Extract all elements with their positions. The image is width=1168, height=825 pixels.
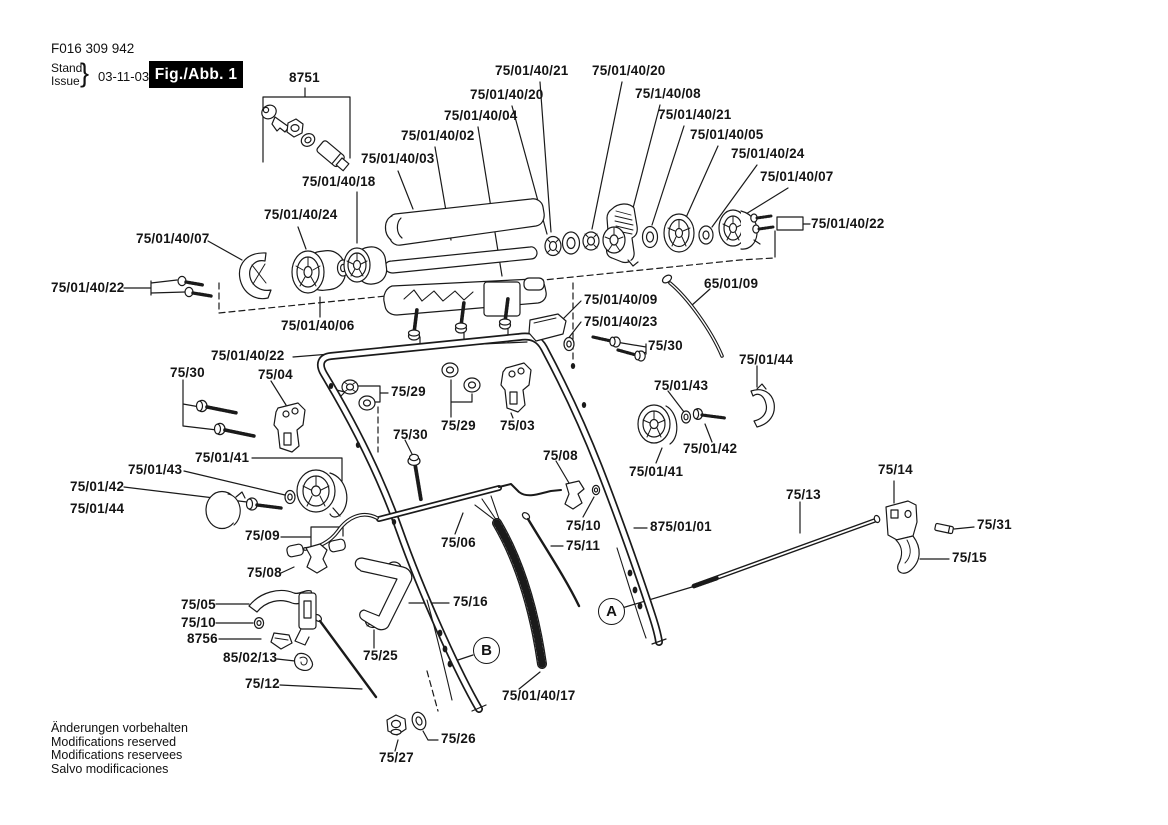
part-label: 75/01/44 — [739, 353, 793, 367]
part-label: 75/30 — [393, 428, 428, 442]
part-label: 75/10 — [566, 519, 601, 533]
section-marker-b: B — [473, 637, 500, 664]
legal-note-de: Änderungen vorbehalten — [51, 722, 188, 736]
part-label: 75/01/40/05 — [690, 128, 764, 142]
right-handwheel-group — [638, 384, 774, 444]
part-label: 75/14 — [878, 463, 913, 477]
part-label: 75/27 — [379, 751, 414, 765]
part-label: 75/26 — [441, 732, 476, 746]
part-label: 75/08 — [543, 449, 578, 463]
left-handwheel-group — [206, 470, 347, 529]
part-label: 75/01/40/18 — [302, 175, 376, 189]
legal-notes: Änderungen vorbehalten Modifications res… — [51, 722, 188, 776]
part-label: 75/01/40/02 — [401, 129, 475, 143]
part-label: 75/30 — [648, 339, 683, 353]
part-label: 75/01/40/20 — [470, 88, 544, 102]
part-label: 8756 — [187, 632, 218, 646]
part-label: 75/10 — [181, 616, 216, 630]
part-label: 875/01/01 — [650, 520, 712, 534]
switch-housing-assembly — [376, 199, 574, 351]
part-label: 75/01/40/24 — [731, 147, 805, 161]
part-label: 75/01/40/04 — [444, 109, 518, 123]
part-label: 75/01/44 — [70, 502, 124, 516]
part-label: 75/01/40/09 — [584, 293, 658, 307]
part-label: 75/01/41 — [629, 465, 683, 479]
part-label: 75/1/40/08 — [635, 87, 701, 101]
part-label: 75/15 — [952, 551, 987, 565]
part-label: 75/01/40/22 — [51, 281, 125, 295]
part-label: 75/01/40/07 — [136, 232, 210, 246]
part-label: 75/01/40/20 — [592, 64, 666, 78]
part-label: 75/06 — [441, 536, 476, 550]
part-label: 75/01/40/07 — [760, 170, 834, 184]
part-label: 75/01/40/03 — [361, 152, 435, 166]
height-adjust-parts-row — [545, 204, 773, 266]
legal-note-es: Salvo modificaciones — [51, 763, 188, 777]
part-label: 75/01/42 — [683, 442, 737, 456]
part-label: 75/29 — [441, 419, 476, 433]
part-label: 85/02/13 — [223, 651, 277, 665]
support-bracket — [355, 558, 411, 630]
part-label: 75/01/40/17 — [502, 689, 576, 703]
part-label: 75/31 — [977, 518, 1012, 532]
part-label: 75/05 — [181, 598, 216, 612]
trigger-group — [886, 501, 954, 573]
part-label: 75/30 — [170, 366, 205, 380]
part-label: 8751 — [289, 71, 320, 85]
part-label: 65/01/09 — [704, 277, 758, 291]
part-label: 75/01/40/22 — [211, 349, 285, 363]
part-label: 75/01/43 — [654, 379, 708, 393]
part-label: 75/01/40/06 — [281, 319, 355, 333]
part-label: 75/29 — [391, 385, 426, 399]
exploded-parts-drawing — [0, 0, 1168, 825]
part-label: 75/16 — [453, 595, 488, 609]
left-roller-assembly — [178, 245, 388, 298]
part-label: 75/04 — [258, 368, 293, 382]
part-label: 75/01/40/21 — [658, 108, 732, 122]
part-label: 75/01/42 — [70, 480, 124, 494]
part-label: 75/01/40/24 — [264, 208, 338, 222]
legal-note-fr: Modifications reservees — [51, 749, 188, 763]
part-label: 75/01/40/22 — [811, 217, 885, 231]
part-label: 75/11 — [566, 539, 600, 553]
part-label: 75/08 — [247, 566, 282, 580]
part-label: 75/01/40/23 — [584, 315, 658, 329]
bottom-fasteners — [387, 710, 428, 735]
part-label: 75/01/43 — [128, 463, 182, 477]
part-label: 75/12 — [245, 677, 280, 691]
part-label: 75/25 — [363, 649, 398, 663]
part-label: 75/09 — [245, 529, 280, 543]
key-lock-assembly — [259, 102, 351, 172]
part-label: 75/03 — [500, 419, 535, 433]
parts-diagram-page: F016 309 942 Stand Issue } 03-11-03 Fig.… — [0, 0, 1168, 825]
legal-note-en: Modifications reserved — [51, 736, 188, 750]
part-label: 75/01/41 — [195, 451, 249, 465]
part-label: 75/13 — [786, 488, 821, 502]
section-marker-a: A — [598, 598, 625, 625]
part-label: 75/01/40/21 — [495, 64, 569, 78]
